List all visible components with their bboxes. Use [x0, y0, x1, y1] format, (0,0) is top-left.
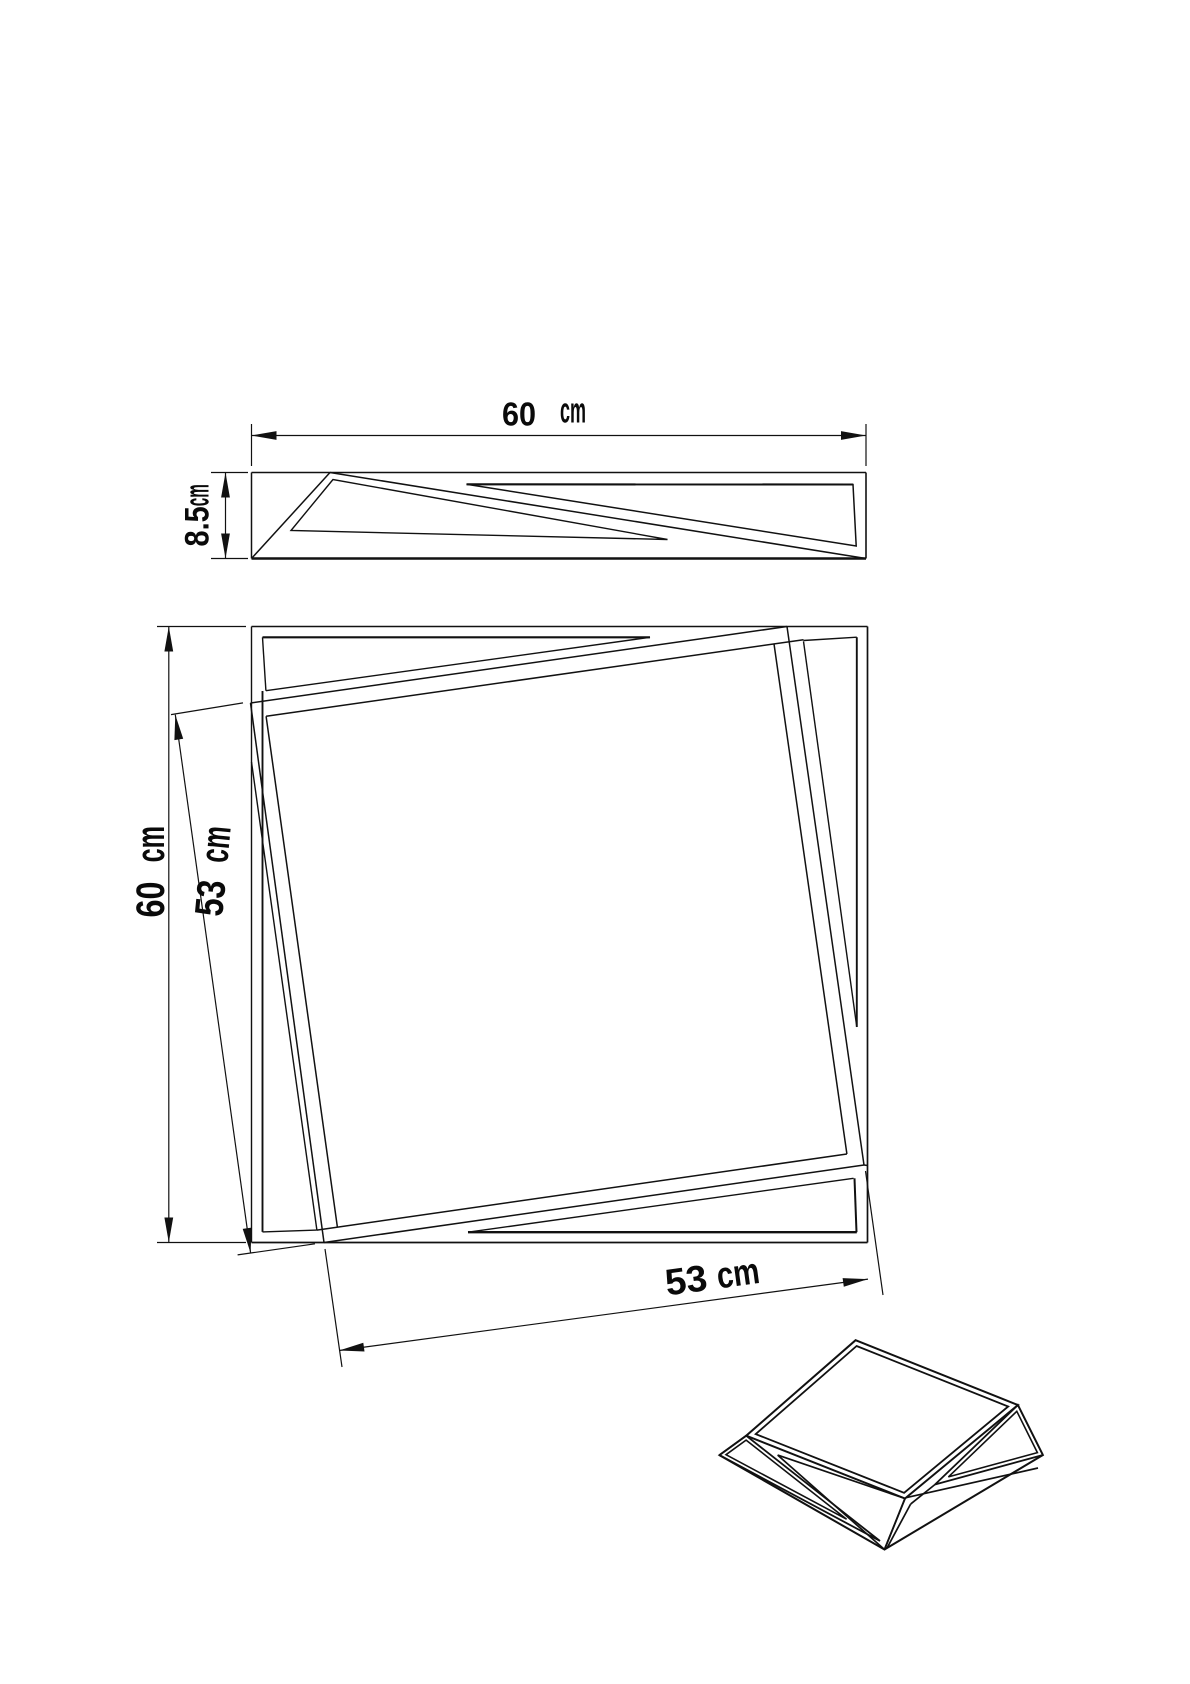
svg-text:cm: cm: [193, 824, 241, 864]
svg-text:cm: cm: [178, 484, 217, 506]
svg-text:cm: cm: [129, 826, 173, 862]
svg-text:53: 53: [662, 1257, 709, 1304]
svg-text:60: 60: [128, 881, 173, 917]
svg-text:53: 53: [186, 878, 234, 918]
svg-text:60: 60: [502, 395, 536, 432]
svg-text:8.5: 8.5: [177, 506, 216, 546]
svg-text:cm: cm: [714, 1251, 762, 1297]
svg-text:cm: cm: [560, 391, 586, 431]
